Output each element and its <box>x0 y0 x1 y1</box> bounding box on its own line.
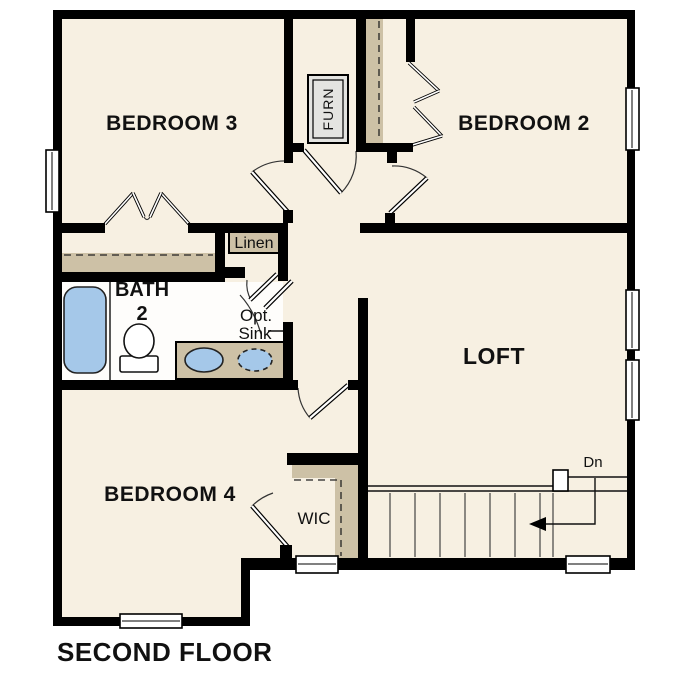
bath-label-line2: 2 <box>136 303 147 325</box>
bedroom2-closet-shelf <box>366 19 383 143</box>
page-title: SECOND FLOOR <box>57 637 272 667</box>
stair-rail-post <box>553 470 568 491</box>
bedroom4-label: BEDROOM 4 <box>104 483 236 506</box>
bathtub <box>64 282 110 380</box>
linen-label: Linen <box>234 235 273 252</box>
bath-label-line1: BATH <box>115 279 169 301</box>
bedroom3-window <box>46 150 59 212</box>
furnace-label: FURN <box>320 88 336 131</box>
bedroom3-closet-shelf <box>61 253 215 272</box>
opt-sink-label-line1: Opt. <box>240 306 272 325</box>
optional-sink <box>238 349 272 371</box>
bedroom2-window <box>626 88 639 150</box>
bedroom2-label: BEDROOM 2 <box>458 112 590 135</box>
stairs-window <box>566 556 610 573</box>
wic-label: WIC <box>297 509 330 528</box>
loft-window-upper <box>626 290 639 350</box>
bedroom3-label: BEDROOM 3 <box>106 112 238 135</box>
bedroom4-window <box>120 614 182 628</box>
floor-plan-page: BEDROOM 3 BEDROOM 2 BEDROOM 4 LOFT BATH … <box>0 0 687 687</box>
floor-plan-drawing: BEDROOM 3 BEDROOM 2 BEDROOM 4 LOFT BATH … <box>0 0 687 687</box>
stairs-down-label: Dn <box>583 454 602 471</box>
loft-window-lower <box>626 360 639 420</box>
opt-sink-label-line2: Sink <box>238 324 272 343</box>
loft-label: LOFT <box>463 343 525 369</box>
sink <box>185 348 223 372</box>
wic-window <box>296 556 338 573</box>
